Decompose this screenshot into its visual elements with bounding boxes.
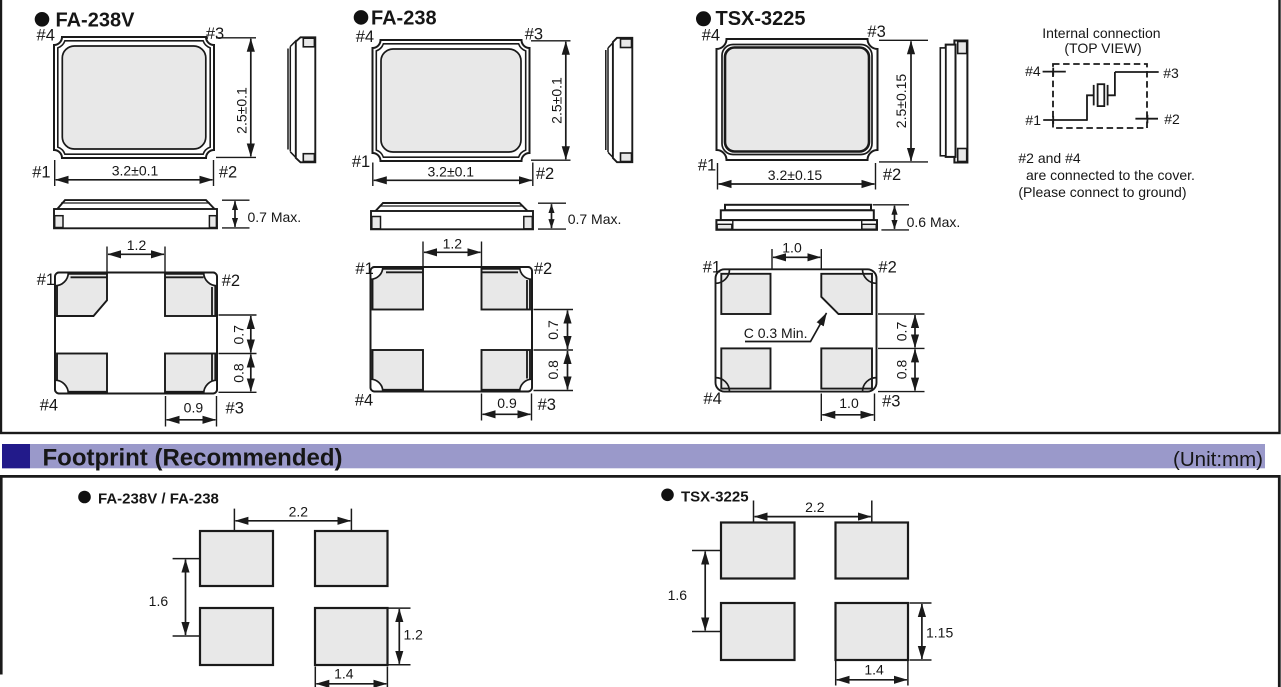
svg-text:FA-238V: FA-238V [56, 10, 136, 32]
svg-text:(Please connect to ground): (Please connect to ground) [1018, 184, 1186, 200]
svg-text:#2 and #4: #2 and #4 [1018, 150, 1080, 166]
svg-text:0.8: 0.8 [545, 360, 561, 380]
svg-text:3.2±0.1: 3.2±0.1 [427, 164, 474, 180]
svg-text:1.0: 1.0 [839, 395, 859, 411]
svg-text:#1: #1 [32, 164, 50, 182]
svg-text:1.6: 1.6 [149, 593, 169, 609]
svg-text:1.4: 1.4 [334, 665, 354, 681]
svg-text:#4: #4 [40, 396, 58, 414]
svg-text:#4: #4 [37, 27, 55, 45]
svg-text:#1: #1 [37, 271, 55, 289]
svg-text:#1: #1 [355, 260, 373, 278]
svg-text:#2: #2 [1164, 111, 1180, 127]
svg-text:C 0.3 Min.: C 0.3 Min. [744, 325, 808, 341]
svg-text:FA-238: FA-238 [371, 7, 437, 29]
svg-text:#2: #2 [883, 166, 901, 184]
svg-text:#2: #2 [222, 272, 240, 290]
svg-text:1.2: 1.2 [404, 627, 424, 643]
svg-text:#3: #3 [206, 25, 224, 43]
svg-text:0.6 Max.: 0.6 Max. [907, 214, 961, 230]
svg-text:TSX-3225: TSX-3225 [716, 8, 806, 30]
svg-text:Internal connection: Internal connection [1042, 25, 1160, 41]
svg-text:#2: #2 [219, 164, 237, 182]
svg-text:Footprint (Recommended): Footprint (Recommended) [43, 445, 343, 472]
svg-text:0.8: 0.8 [231, 363, 247, 383]
svg-text:2.5±0.1: 2.5±0.1 [234, 87, 250, 134]
svg-text:2.2: 2.2 [289, 503, 309, 519]
svg-text:#3: #3 [226, 400, 244, 418]
svg-text:#2: #2 [878, 259, 896, 277]
svg-text:0.7 Max.: 0.7 Max. [248, 209, 302, 225]
svg-text:#1: #1 [698, 156, 716, 174]
svg-text:#2: #2 [534, 260, 552, 278]
svg-text:#2: #2 [536, 165, 554, 183]
svg-text:1.0: 1.0 [782, 240, 802, 256]
svg-text:#4: #4 [1025, 63, 1041, 79]
svg-text:#3: #3 [538, 396, 556, 414]
svg-text:3.2±0.15: 3.2±0.15 [768, 167, 823, 183]
svg-text:FA-238V / FA-238: FA-238V / FA-238 [98, 491, 219, 508]
svg-text:2.5±0.1: 2.5±0.1 [549, 77, 565, 124]
svg-text:0.7: 0.7 [894, 322, 910, 342]
svg-text:0.9: 0.9 [184, 399, 204, 415]
svg-text:3.2±0.1: 3.2±0.1 [112, 162, 159, 178]
svg-text:1.15: 1.15 [926, 625, 953, 641]
svg-text:(Unit:mm): (Unit:mm) [1173, 448, 1263, 471]
svg-text:0.7: 0.7 [545, 320, 561, 340]
svg-text:1.6: 1.6 [668, 587, 688, 603]
svg-text:#4: #4 [355, 392, 373, 410]
svg-text:TSX-3225: TSX-3225 [681, 488, 749, 505]
svg-text:#4: #4 [702, 26, 720, 44]
svg-text:1.2: 1.2 [127, 237, 147, 253]
svg-text:2.5±0.15: 2.5±0.15 [893, 74, 909, 129]
svg-text:#3: #3 [1163, 65, 1179, 81]
svg-text:#1: #1 [1025, 112, 1041, 128]
svg-text:#1: #1 [352, 153, 370, 171]
svg-text:#3: #3 [867, 23, 885, 41]
svg-text:#4: #4 [703, 390, 721, 408]
svg-text:1.4: 1.4 [864, 662, 884, 678]
svg-text:0.8: 0.8 [894, 360, 910, 380]
svg-text:0.7: 0.7 [231, 325, 247, 345]
svg-text:0.9: 0.9 [497, 395, 517, 411]
svg-text:#1: #1 [703, 259, 721, 277]
svg-text:0.7 Max.: 0.7 Max. [568, 211, 622, 227]
svg-text:2.2: 2.2 [805, 499, 825, 515]
svg-text:#4: #4 [356, 28, 374, 46]
svg-text:(TOP VIEW): (TOP VIEW) [1064, 40, 1141, 56]
svg-text:are connected to the cover.: are connected to the cover. [1026, 167, 1195, 183]
svg-text:1.2: 1.2 [443, 235, 463, 251]
svg-text:#3: #3 [882, 393, 900, 411]
